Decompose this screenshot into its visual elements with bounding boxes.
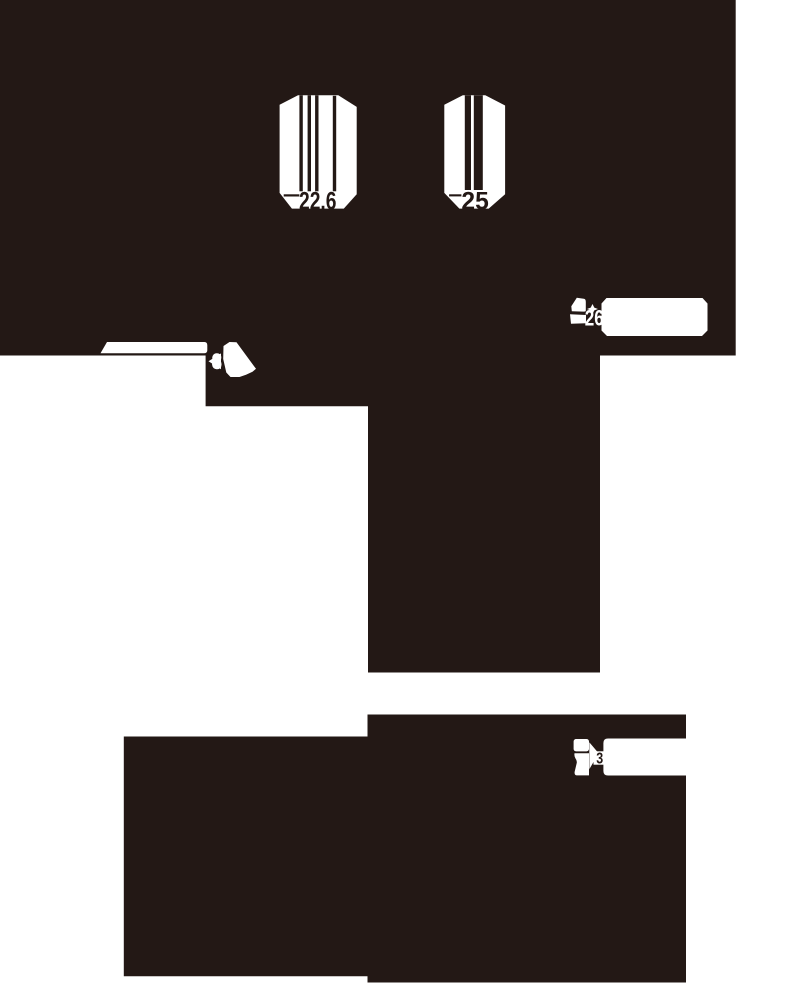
svg-text:3: 3 (212, 351, 222, 374)
svg-text:22.6: 22.6 (299, 187, 336, 215)
svg-text:3: 3 (596, 749, 603, 767)
svg-text:25: 25 (461, 188, 489, 215)
